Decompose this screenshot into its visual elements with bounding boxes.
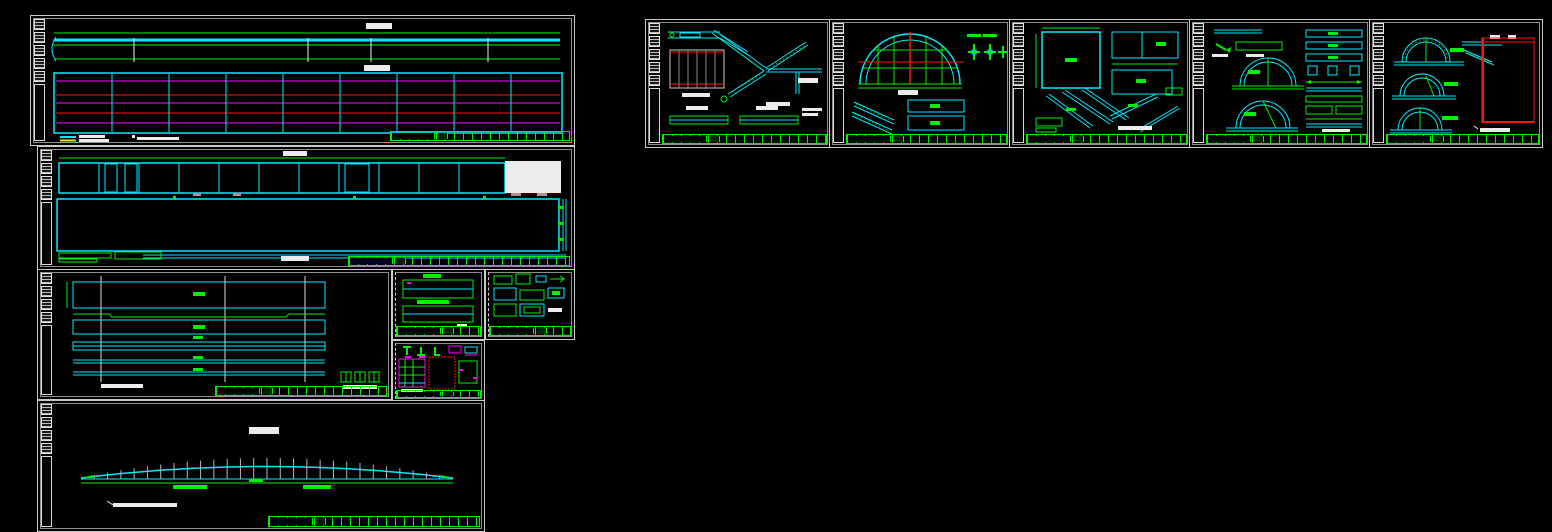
view-title-blob [898, 90, 918, 95]
title-block-bar[interactable] [846, 134, 1007, 144]
sheet-connection-details[interactable] [485, 269, 575, 340]
half-dome-grid [858, 32, 964, 95]
annotation-block [505, 161, 561, 193]
dotted-plate [429, 357, 455, 389]
half-arch-3 [1390, 108, 1458, 133]
beam-details-drawing [53, 272, 387, 395]
title-block-bar[interactable] [662, 134, 827, 144]
diagonal-members [852, 102, 894, 134]
sheet-side-strip [41, 273, 52, 395]
stair-drawing [662, 22, 825, 132]
table-caption-blob [682, 93, 710, 97]
connection-details-drawing [490, 272, 570, 332]
legend [60, 135, 179, 142]
sheet-side-strip [34, 19, 45, 141]
sheet-side-strip [649, 23, 660, 143]
split-plate [1112, 32, 1178, 64]
sheet-girder-elevation-plan[interactable] [30, 15, 575, 146]
arch-rib-drawing-2 [1386, 22, 1537, 132]
title-block-bar[interactable] [1386, 134, 1539, 144]
title-block-bar[interactable] [1206, 134, 1367, 144]
cross-section-top [403, 280, 473, 298]
sheet-embed-plates[interactable] [392, 340, 485, 402]
detail-row-1 [494, 274, 564, 284]
beam-strip-1 [67, 279, 325, 317]
dense-detail [459, 361, 477, 383]
data-table [670, 50, 724, 97]
note-blob [101, 384, 143, 388]
sheet-side-strip [41, 150, 52, 265]
title-block-bar[interactable] [348, 256, 570, 266]
anchor-shapes [403, 346, 477, 358]
half-arch-1 [1394, 38, 1464, 65]
label-blob [798, 78, 818, 83]
deck-outline [57, 196, 566, 251]
label-blob [281, 256, 309, 261]
note-blob [1322, 129, 1350, 132]
plates-drawing [1026, 22, 1185, 132]
title-block-bar[interactable] [390, 131, 570, 141]
elevation-view [52, 23, 560, 64]
sheet-side-strip [1193, 23, 1204, 143]
detail-row-3 [494, 304, 562, 316]
section-title-blob [417, 300, 449, 304]
rebar-schedule-column [339, 280, 383, 389]
view-title-blob [283, 151, 307, 156]
half-arch-2 [1226, 101, 1298, 131]
dim-blob [173, 485, 207, 489]
hatched-bar [1236, 42, 1282, 50]
cross-section-bottom [403, 306, 473, 327]
plates [908, 97, 964, 130]
half-arch-2 [1392, 74, 1458, 99]
sheet-dome-grid[interactable] [829, 19, 1011, 148]
camber-posts [93, 456, 440, 479]
corner-details [59, 252, 161, 262]
title-block-bar[interactable] [1026, 134, 1187, 144]
detail-row-2 [494, 288, 564, 300]
dim-blob [303, 485, 331, 489]
note-blob [113, 503, 177, 507]
section-title-blob [423, 274, 441, 278]
cad-model-space [0, 0, 1552, 532]
dome-drawing [846, 22, 1005, 132]
cross-sections-drawing [397, 272, 480, 332]
sheet-camber-diagram[interactable] [37, 400, 485, 532]
sheet-side-strip [41, 404, 52, 527]
view-title-blob [249, 427, 279, 434]
beam-strip-5 [73, 368, 325, 375]
rebar-plan-view [54, 65, 562, 135]
beam-strip-2 [73, 320, 325, 334]
view-title-blob [366, 23, 392, 29]
label-blob [756, 106, 778, 110]
sheet-arch-rib-details-2[interactable] [1369, 19, 1543, 148]
note-blob [1118, 126, 1152, 130]
title-block-bar[interactable] [396, 326, 481, 336]
plate-2 [1112, 70, 1172, 94]
camber-drawing [53, 403, 480, 525]
sheet-cross-sections[interactable] [392, 269, 485, 340]
note-blob [1480, 128, 1510, 132]
hatch-detail [1036, 118, 1062, 126]
beam-strip-4 [73, 356, 325, 363]
sheet-stair-details[interactable] [645, 19, 831, 148]
stair-stringer [712, 30, 822, 106]
half-arch-1 [1232, 58, 1304, 89]
beam-strip-3 [73, 336, 325, 350]
anchor-detail [1212, 44, 1231, 57]
notes-block [964, 70, 1002, 96]
sheet-side-strip [833, 23, 844, 143]
stringer-strip-1 [670, 106, 728, 124]
sheet-framing-plan[interactable] [37, 146, 575, 270]
label-blob [766, 102, 790, 106]
title-block-bar[interactable] [268, 516, 480, 527]
sheet-arch-rib-details-1[interactable] [1189, 19, 1371, 148]
cross-joint-details [967, 34, 1008, 60]
grid-panel [399, 359, 425, 387]
sheet-beam-details[interactable] [37, 269, 392, 400]
framing-drawing [53, 149, 568, 263]
diagonal-members [1046, 88, 1180, 132]
arch-rib-drawing-1 [1206, 22, 1365, 132]
stringer-strip-2 [740, 106, 798, 124]
label-blob [686, 106, 708, 110]
member-stack [1306, 30, 1362, 132]
sheet-side-strip [1013, 23, 1024, 143]
striped-beam-strip [59, 161, 561, 196]
title-block-bar[interactable] [215, 386, 387, 396]
material-schedule-table [1482, 35, 1534, 122]
view-title-blob [364, 65, 390, 71]
square-plate [1036, 28, 1100, 88]
girder-drawing [46, 18, 572, 143]
top-bar [1214, 26, 1262, 33]
embed-plates-drawing [397, 343, 480, 394]
sheet-plate-details[interactable] [1009, 19, 1191, 148]
sheet-side-strip [1373, 23, 1384, 143]
title-block-bar[interactable] [489, 326, 571, 336]
title-block-bar[interactable] [396, 390, 481, 398]
